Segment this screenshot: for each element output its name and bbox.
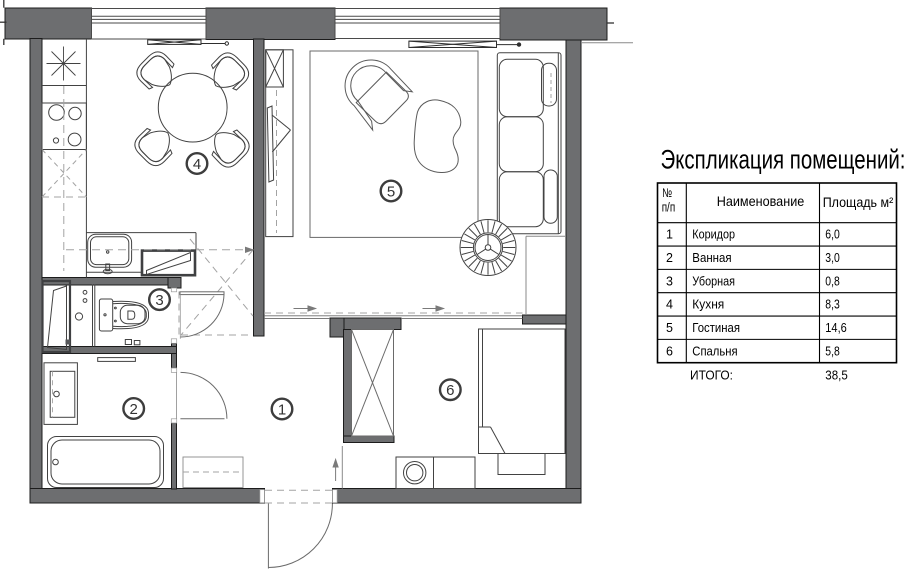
svg-text:8,3: 8,3 xyxy=(825,298,840,312)
svg-text:Ванная: Ванная xyxy=(692,251,731,265)
svg-text:Спальня: Спальня xyxy=(692,344,737,358)
svg-text:3,0: 3,0 xyxy=(825,251,840,265)
svg-text:1: 1 xyxy=(278,402,286,419)
svg-text:Экспликация помещений:: Экспликация помещений: xyxy=(661,144,906,174)
svg-text:2: 2 xyxy=(130,401,138,418)
svg-text:5: 5 xyxy=(666,321,673,335)
svg-text:1: 1 xyxy=(666,228,673,242)
svg-text:14,6: 14,6 xyxy=(825,321,847,335)
svg-text:6: 6 xyxy=(446,382,454,399)
svg-text:5,8: 5,8 xyxy=(825,344,840,358)
svg-text:Коридор: Коридор xyxy=(692,228,735,242)
svg-text:2: 2 xyxy=(666,251,673,265)
svg-text:38,5: 38,5 xyxy=(825,369,848,383)
svg-text:6: 6 xyxy=(666,344,673,358)
svg-text:Наименование: Наименование xyxy=(717,193,805,209)
svg-text:Гостиная: Гостиная xyxy=(692,321,740,335)
svg-text:п/п: п/п xyxy=(662,200,676,214)
svg-text:ИТОГО:: ИТОГО: xyxy=(690,369,733,383)
svg-text:Уборная: Уборная xyxy=(692,274,735,288)
svg-text:3: 3 xyxy=(666,274,673,288)
svg-text:Кухня: Кухня xyxy=(692,298,724,312)
svg-text:Площадь м²: Площадь м² xyxy=(823,194,894,210)
svg-text:5: 5 xyxy=(387,184,395,201)
svg-text:4: 4 xyxy=(666,298,673,312)
svg-text:6,0: 6,0 xyxy=(825,228,840,242)
svg-text:3: 3 xyxy=(155,292,163,309)
svg-text:№: № xyxy=(662,186,672,200)
svg-text:4: 4 xyxy=(193,156,201,173)
svg-text:0,8: 0,8 xyxy=(825,274,840,288)
